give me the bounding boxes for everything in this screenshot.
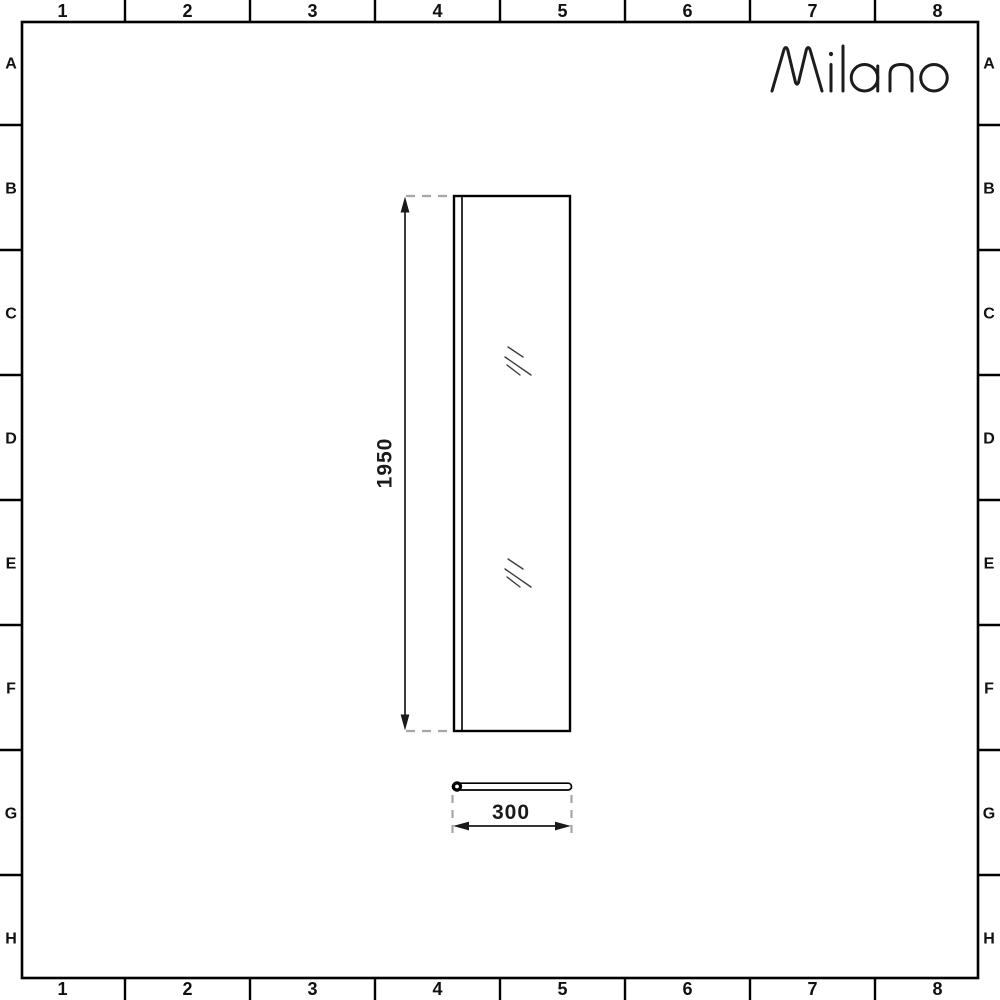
grid-row-label-left: E <box>6 556 17 573</box>
height-dimension-label: 1950 <box>374 438 397 489</box>
grid-row-label-right: A <box>983 56 995 73</box>
arrow-down-icon <box>401 715 410 731</box>
grid-row-label-left: H <box>5 931 17 948</box>
grid-col-label-top: 2 <box>182 1 192 21</box>
grid-col-label-top: 4 <box>432 1 442 21</box>
logo-letter-o <box>921 65 948 92</box>
grid-col-label-top: 1 <box>57 1 67 21</box>
grid-col-label-top: 5 <box>557 1 567 21</box>
grid-row-label-right: B <box>983 181 995 198</box>
arrow-left-icon <box>453 822 469 831</box>
grid-col-label-bottom: 4 <box>432 979 442 999</box>
logo-letter-n <box>890 65 912 92</box>
grid-row-label-right: F <box>984 681 994 698</box>
grid-col-label-bottom: 8 <box>932 979 942 999</box>
logo-letter-a-bowl <box>851 65 878 92</box>
grid-col-label-bottom: 5 <box>557 979 567 999</box>
grid-row-label-left: G <box>5 806 17 823</box>
panel-outline <box>454 196 570 731</box>
height-dimension: 1950 <box>374 196 453 731</box>
panel-plan-view <box>452 781 572 791</box>
grid-row-label-right: G <box>983 806 995 823</box>
technical-drawing-page: 1122334455667788AABBCCDDEEFFGGHH <box>0 0 1000 1000</box>
grid-row-label-right: E <box>984 556 995 573</box>
grid-row-label-left: C <box>5 306 17 323</box>
width-dimension: 300 <box>453 795 572 834</box>
logo-letter-M <box>772 48 822 91</box>
grid-row-label-left: B <box>5 181 17 198</box>
grid-col-label-top: 7 <box>807 1 817 21</box>
panel-plan-outline <box>453 783 572 790</box>
grid-col-label-bottom: 3 <box>307 979 317 999</box>
logo-letter-i-dot <box>829 52 833 56</box>
grid-col-label-bottom: 1 <box>57 979 67 999</box>
width-dimension-label: 300 <box>492 801 530 824</box>
grid-col-label-bottom: 2 <box>182 979 192 999</box>
grid-col-label-top: 6 <box>682 1 692 21</box>
milano-logo <box>772 46 947 91</box>
grid-col-label-bottom: 7 <box>807 979 817 999</box>
arrow-right-icon <box>555 822 571 831</box>
drawing-sheet: 1122334455667788AABBCCDDEEFFGGHH <box>0 0 1000 1000</box>
grid-row-label-right: C <box>983 306 995 323</box>
grid-row-label-right: H <box>983 931 995 948</box>
grid-col-label-top: 3 <box>307 1 317 21</box>
grid-col-label-top: 8 <box>932 1 942 21</box>
grid-row-label-left: D <box>5 431 17 448</box>
grid-row-label-left: F <box>6 681 16 698</box>
grid-row-label-right: D <box>983 431 995 448</box>
grid-col-label-bottom: 6 <box>682 979 692 999</box>
wall-profile-pivot-hole <box>455 785 459 789</box>
grid-row-label-left: A <box>5 56 17 73</box>
panel-side-view <box>454 196 570 731</box>
arrow-up-icon <box>401 197 410 213</box>
